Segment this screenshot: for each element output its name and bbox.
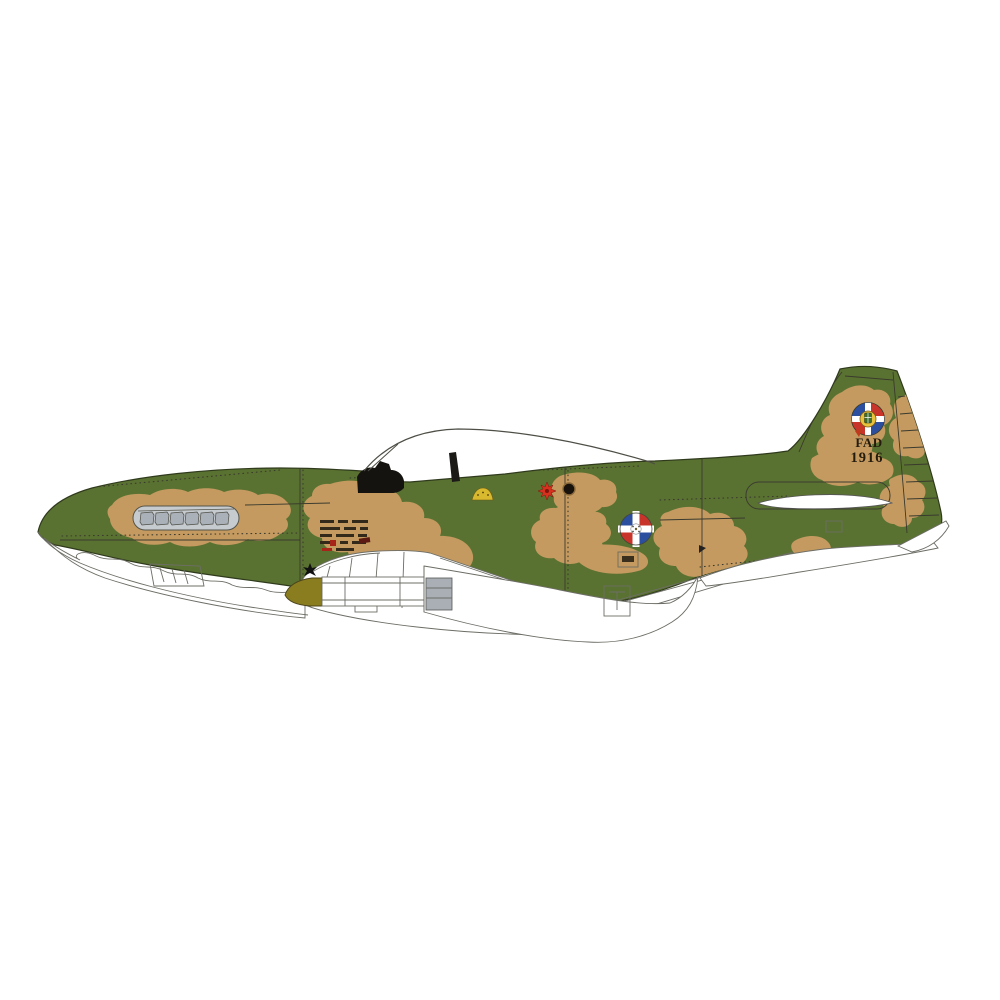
tail-code-text: FAD bbox=[855, 435, 882, 450]
aircraft-illustration: FAD 1916 bbox=[0, 0, 1000, 1000]
exhaust-stacks bbox=[133, 506, 239, 530]
drop-tank bbox=[285, 577, 430, 606]
tail-number-text: 1916 bbox=[851, 450, 884, 466]
fuel-filler-cap bbox=[563, 483, 575, 495]
aircraft-profile-svg: FAD 1916 bbox=[0, 0, 1000, 1000]
